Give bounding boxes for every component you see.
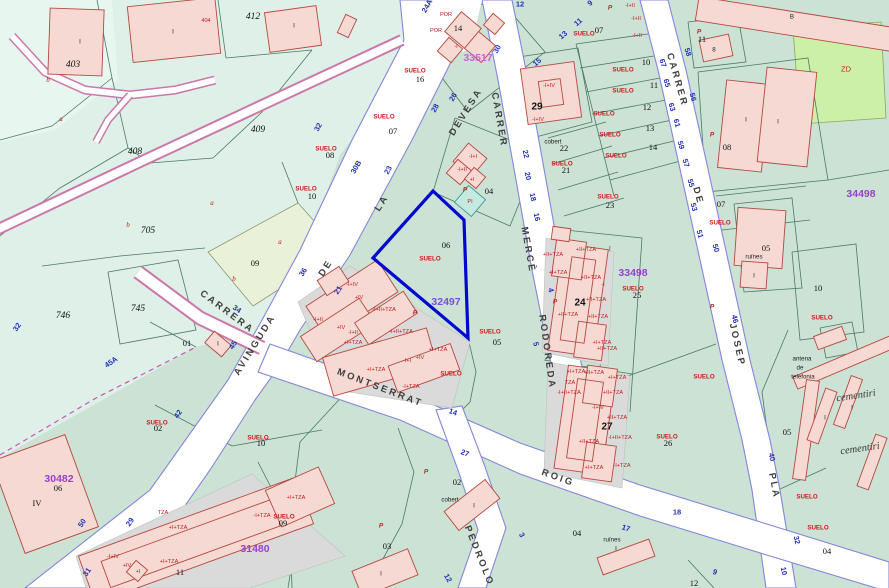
parcel-number: 10 bbox=[308, 191, 317, 201]
parcel-number: 746 bbox=[56, 311, 71, 321]
p-mark: P bbox=[697, 29, 702, 36]
p-mark: P bbox=[710, 132, 715, 139]
building bbox=[582, 442, 617, 482]
suelo-label: SUELO bbox=[693, 374, 715, 381]
building-storey-label: -I+II+TZA bbox=[372, 307, 396, 313]
building-storey-label: POR bbox=[440, 12, 452, 18]
building-storey-label: -I+TZA bbox=[253, 513, 271, 519]
p-mark: P bbox=[413, 310, 418, 317]
suelo-label: SUELO bbox=[709, 220, 731, 227]
p-mark: P bbox=[710, 304, 715, 311]
map-text: I bbox=[217, 341, 219, 348]
parcel-number: 06 bbox=[442, 240, 451, 250]
suelo-label: SUELO bbox=[479, 329, 501, 336]
parcel-number: 14 bbox=[454, 23, 463, 33]
parcel-number: 08 bbox=[723, 142, 732, 152]
map-text: I bbox=[380, 571, 382, 578]
suelo-label: SUELO bbox=[440, 371, 462, 378]
building-storey-label: +II+TZA bbox=[603, 390, 623, 396]
suelo-label: SUELO bbox=[656, 434, 678, 441]
map-text: I bbox=[79, 39, 81, 46]
building-storey-label: TZA bbox=[158, 510, 169, 516]
street-number: 18 bbox=[673, 508, 681, 517]
map-text: ZD bbox=[841, 65, 852, 74]
parcel-number: 14 bbox=[649, 142, 658, 152]
parcel-number: 07 bbox=[595, 25, 604, 35]
parcel-number: 07 bbox=[389, 126, 398, 136]
parcel-number: 745 bbox=[131, 304, 146, 314]
subparcel-letter: a bbox=[278, 238, 282, 246]
map-text: I bbox=[172, 29, 174, 36]
map-text: I bbox=[615, 546, 617, 553]
suelo-label: SUELO bbox=[273, 514, 295, 521]
building-storey-label: +I+TZA bbox=[169, 525, 188, 531]
parcel-number: 04 bbox=[823, 546, 832, 556]
suelo-label: SUELO bbox=[146, 420, 168, 427]
building-storey-label: -I+II bbox=[313, 317, 323, 323]
parcel-number: 11 bbox=[650, 80, 658, 90]
building bbox=[757, 67, 817, 167]
parcel-number: 13 bbox=[646, 123, 655, 133]
parcel-number: 01 bbox=[183, 338, 192, 348]
building-storey-label: -I+TZA bbox=[402, 384, 420, 390]
street-number: 12 bbox=[516, 0, 524, 9]
building-storey-label: +I+TZA bbox=[567, 369, 586, 375]
subparcel-letter: a bbox=[59, 115, 63, 123]
parcel-number: 05 bbox=[762, 243, 771, 253]
parcel-number: 04 bbox=[573, 528, 582, 538]
map-text: cobert bbox=[441, 497, 458, 504]
parcel-number: 09 bbox=[251, 258, 260, 268]
map-text: I bbox=[753, 273, 755, 280]
building-storey-label: -I+II bbox=[457, 167, 467, 173]
p-mark: P bbox=[608, 5, 613, 12]
suelo-label: SUELO bbox=[605, 153, 627, 160]
parcel-number: 705 bbox=[141, 226, 156, 236]
parcel-number: 05 bbox=[493, 337, 502, 347]
map-text: de bbox=[797, 365, 804, 372]
p-mark: P bbox=[424, 469, 429, 476]
suelo-label: SUELO bbox=[796, 494, 818, 501]
map-text: I bbox=[293, 23, 295, 30]
subparcel-letter: a bbox=[210, 199, 214, 207]
building-storey-label: +I+TZA bbox=[160, 559, 179, 565]
building-storey-label: +II+TZA bbox=[597, 346, 617, 352]
building-storey-label: POR bbox=[430, 28, 442, 34]
suelo-label: SUELO bbox=[597, 194, 619, 201]
suelo-label: SUELO bbox=[373, 114, 395, 121]
suelo-label: SUELO bbox=[573, 31, 595, 38]
block-ref-34498: 34498 bbox=[846, 188, 875, 200]
parcel-number: 23 bbox=[606, 200, 615, 210]
p-mark: P bbox=[553, 299, 558, 306]
map-text: telefonia bbox=[791, 374, 815, 381]
map-text: I bbox=[824, 415, 826, 422]
building-storey-label: +I+TZA bbox=[429, 347, 448, 353]
building-storey-label: +I+TZA bbox=[287, 495, 306, 501]
building-storey-label: -I+TZA bbox=[613, 463, 631, 469]
parcel-number: 03 bbox=[383, 541, 392, 551]
building-storey-label: -I+I bbox=[469, 154, 478, 160]
map-text: B bbox=[790, 14, 794, 21]
subparcel-letter: b bbox=[46, 76, 50, 84]
block-ref-33517: 33517 bbox=[463, 52, 492, 64]
building-storey-label: +II+TZA bbox=[586, 297, 606, 303]
block-ref-33498: 33498 bbox=[618, 267, 647, 279]
map-text: 8 bbox=[712, 47, 716, 54]
building-storey-label: +II+TZA bbox=[576, 247, 596, 253]
building-storey-label: 404 bbox=[201, 18, 210, 24]
map-text: I bbox=[473, 503, 475, 510]
parcel-number: 07 bbox=[717, 199, 726, 209]
cadastral-map-viewport: AVINGUDADELADEVESACARRERACARRERMERCÈRODO… bbox=[0, 0, 889, 588]
building bbox=[520, 62, 581, 125]
parcel-number: 16 bbox=[416, 74, 425, 84]
building-storey-label: -I+IV bbox=[107, 554, 119, 560]
suelo-label: SUELO bbox=[247, 435, 269, 442]
parcel-number: 403 bbox=[66, 60, 81, 70]
parcel-number: IV bbox=[33, 498, 43, 508]
parcel-number: 408 bbox=[128, 147, 143, 157]
cadastral-map: AVINGUDADELADEVESACARRERACARRERMERCÈRODO… bbox=[0, 0, 889, 588]
suelo-label: SUELO bbox=[811, 315, 833, 322]
parcel-number: 10 bbox=[642, 57, 651, 67]
map-text: ruïnes bbox=[603, 537, 620, 544]
building-storey-label: +IV bbox=[416, 355, 425, 361]
building-storey-label: +II+TZA bbox=[584, 370, 604, 376]
map-text: I bbox=[745, 117, 747, 124]
building-storey-label: +I bbox=[136, 569, 141, 575]
building-storey-label: -I+II+TZA bbox=[557, 390, 581, 396]
building-storey-label: +I+TZA bbox=[585, 465, 604, 471]
building-storey-label: +II+TZA bbox=[581, 275, 601, 281]
suelo-label: SUELO bbox=[593, 111, 615, 118]
block-ref-31480: 31480 bbox=[240, 543, 269, 555]
building-storey-label: -I bbox=[601, 282, 605, 288]
building-storey-label: +II+TZA bbox=[543, 252, 563, 258]
building-storey-label: -I+IV bbox=[346, 282, 358, 288]
parcel-number: 412 bbox=[246, 12, 261, 22]
building-storey-label: TZA bbox=[565, 380, 576, 386]
parcel-number: 02 bbox=[453, 477, 462, 487]
building-storey-label: +I+TZA bbox=[549, 270, 568, 276]
suelo-label: SUELO bbox=[315, 146, 337, 153]
subparcel-letter: b bbox=[126, 221, 130, 229]
building-storey-label: -I+II bbox=[625, 3, 635, 9]
parcel-number: 05 bbox=[783, 427, 792, 437]
block-ref-32497: 32497 bbox=[431, 296, 460, 308]
building-storey-label: -I+I bbox=[403, 358, 412, 364]
parcel-number: 12 bbox=[690, 578, 699, 588]
parcel-number: 10 bbox=[814, 283, 823, 293]
building-storey-label: -I+II+TZA bbox=[608, 435, 632, 441]
p-mark: P bbox=[379, 523, 384, 530]
suelo-label: SUELO bbox=[419, 256, 441, 263]
building-storey-label: -I+II+TZA bbox=[389, 329, 413, 335]
parcel-number: 11 bbox=[176, 567, 184, 577]
parcel-number: 29 bbox=[531, 102, 543, 113]
building bbox=[551, 226, 571, 241]
suelo-label: SUELO bbox=[599, 132, 621, 139]
parcel-number: 12 bbox=[643, 102, 652, 112]
building-storey-label: +IV bbox=[337, 325, 346, 331]
map-text: ruïnes bbox=[745, 254, 762, 261]
parcel-number: 11 bbox=[698, 34, 706, 44]
building-storey-label: -I+IV bbox=[532, 117, 544, 123]
building-storey-label: +IV bbox=[355, 295, 364, 301]
building-storey-label: +I bbox=[470, 177, 475, 183]
subparcel-letter: b bbox=[232, 275, 236, 283]
building bbox=[127, 0, 220, 62]
parcel-number: 27 bbox=[601, 422, 613, 433]
building-storey-label: -I+IV bbox=[543, 83, 555, 89]
building-storey-label: +I+TZA bbox=[367, 367, 386, 373]
block-ref-30482: 30482 bbox=[44, 473, 73, 485]
suelo-label: SUELO bbox=[807, 525, 829, 532]
building-storey-label: +II+TZA bbox=[579, 439, 599, 445]
building-storey-label: -I+II bbox=[632, 33, 642, 39]
building-storey-label: -I+II bbox=[631, 16, 641, 22]
building-storey-label: +II+TZA bbox=[588, 314, 608, 320]
map-text: I bbox=[777, 119, 779, 126]
building-storey-label: -I+IV bbox=[592, 405, 604, 411]
parcel-number: 04 bbox=[485, 186, 494, 196]
suelo-label: SUELO bbox=[612, 67, 634, 74]
building-storey-label: +I+TZA bbox=[344, 340, 363, 346]
building-storey-label: +IV bbox=[123, 563, 132, 569]
map-text: I bbox=[851, 405, 853, 412]
suelo-label: SUELO bbox=[404, 68, 426, 75]
building-storey-label: PI bbox=[467, 199, 473, 205]
building-storey-label: +II+TZA bbox=[607, 415, 627, 421]
suelo-label: SUELO bbox=[551, 161, 573, 168]
suelo-label: SUELO bbox=[622, 286, 644, 293]
p-mark: P bbox=[463, 187, 468, 194]
building-storey-label: +II+TZA bbox=[558, 312, 578, 318]
map-text: antena bbox=[793, 356, 812, 363]
suelo-label: SUELO bbox=[612, 88, 634, 95]
suelo-label: SUELO bbox=[295, 186, 317, 193]
building-storey-label: -I+II bbox=[348, 330, 358, 336]
parcel-number: 409 bbox=[251, 125, 266, 135]
building-storey-label: +I+TZA bbox=[608, 375, 627, 381]
parcel-number: 24 bbox=[574, 298, 586, 309]
building-storey-label: -I bbox=[454, 44, 458, 50]
map-text: cobert bbox=[544, 139, 561, 146]
